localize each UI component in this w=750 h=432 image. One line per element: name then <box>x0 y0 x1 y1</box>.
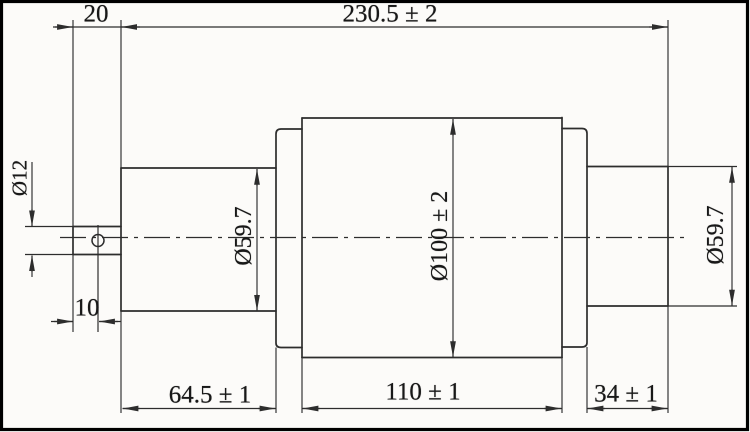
drawing-canvas <box>0 0 750 432</box>
dim-label-left-neck-length: 64.5 ± 1 <box>169 383 251 408</box>
dim-label-stub-diameter: Ø12 <box>10 160 31 196</box>
extension-lines <box>25 20 737 413</box>
dim-label-body-diameter: Ø100 ± 2 <box>428 191 452 282</box>
sheet-border <box>2 2 748 430</box>
dim-label-body-length: 110 ± 1 <box>385 380 460 405</box>
dim-label-right-neck-length: 34 ± 1 <box>594 382 658 407</box>
technical-drawing-sheet: 20 230.5 ± 2 Ø12 10 Ø59.7 Ø100 ± 2 Ø59.7… <box>0 0 750 432</box>
dim-label-offset-20: 20 <box>84 2 109 27</box>
dim-label-right-neck-diameter: Ø59.7 <box>704 205 728 264</box>
dim-label-hole-offset: 10 <box>75 296 100 321</box>
dimension-lines <box>32 27 732 409</box>
dim-label-left-neck-diameter: Ø59.7 <box>232 206 256 265</box>
dimension-arrows <box>32 27 732 409</box>
center-line <box>60 225 686 332</box>
dim-label-overall-length: 230.5 ± 2 <box>343 2 438 27</box>
